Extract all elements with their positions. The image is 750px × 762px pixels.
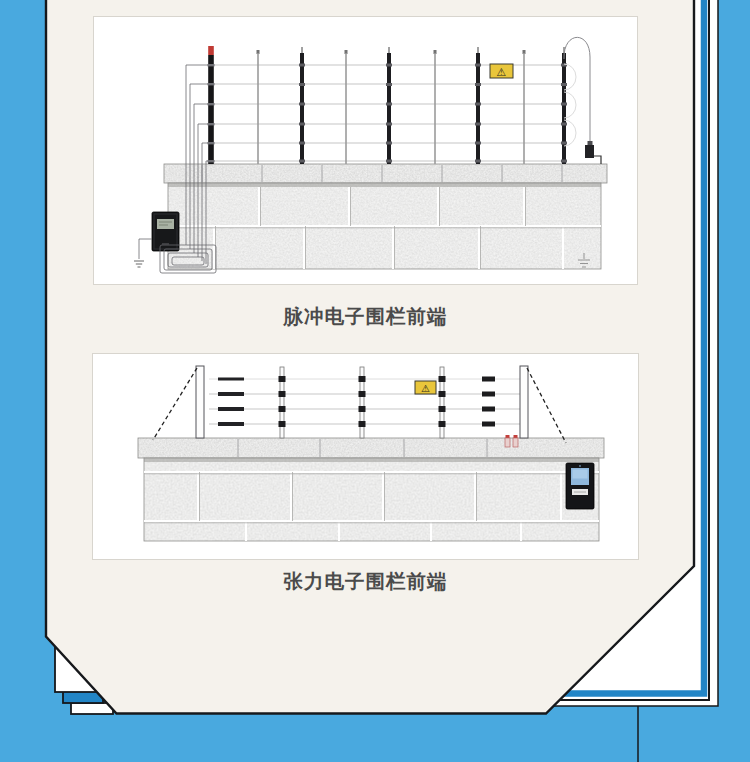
tension-controller-box bbox=[566, 463, 594, 509]
article-page: ⚠ bbox=[0, 0, 750, 762]
caption-pulse-fence: 脉冲电子围栏前端 bbox=[93, 303, 638, 329]
ground-icon bbox=[134, 261, 144, 267]
tension-wires bbox=[209, 379, 520, 424]
tension-springs bbox=[218, 378, 244, 427]
pulse-fence-illustration: ⚠ bbox=[94, 17, 637, 284]
caption-tension-fence: 张力电子围栏前端 bbox=[93, 568, 638, 594]
warning-sign-icon: ⚠ bbox=[415, 381, 436, 394]
warning-sign-icon: ⚠ bbox=[490, 64, 513, 78]
stone-wall bbox=[164, 164, 607, 269]
intermediate-post bbox=[439, 367, 446, 438]
tension-fence-illustration: ⚠ bbox=[93, 354, 638, 559]
stone-wall bbox=[138, 438, 604, 541]
intermediate-post bbox=[279, 367, 286, 438]
intermediate-post bbox=[359, 367, 366, 438]
tension-weights bbox=[482, 377, 495, 427]
svg-text:⚠: ⚠ bbox=[421, 383, 430, 394]
svg-text:⚠: ⚠ bbox=[497, 66, 507, 78]
figure-panel-tension-fence: ⚠ bbox=[92, 353, 639, 560]
figure-panel-pulse-fence: ⚠ bbox=[93, 16, 638, 285]
alarm-beacon bbox=[208, 46, 214, 55]
